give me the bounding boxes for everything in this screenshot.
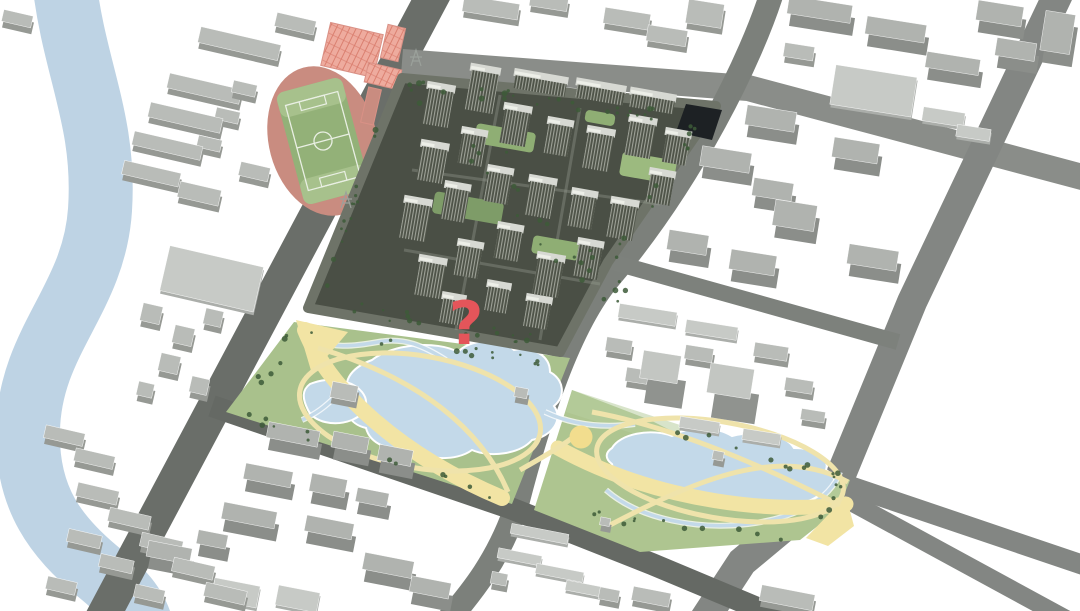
tree	[587, 268, 592, 273]
tree	[380, 342, 384, 346]
tree	[256, 374, 261, 379]
tree	[479, 96, 485, 102]
tree	[410, 89, 413, 92]
context-building	[489, 571, 510, 592]
tree	[633, 517, 636, 520]
tree	[736, 526, 742, 532]
tree	[539, 243, 541, 245]
tree	[477, 151, 482, 156]
tree	[307, 439, 310, 442]
tree	[598, 510, 601, 513]
tree	[835, 470, 841, 476]
tree	[354, 194, 357, 197]
tree	[605, 109, 610, 114]
tree	[768, 457, 773, 462]
tree	[629, 110, 632, 113]
tree	[349, 217, 352, 220]
tree	[331, 257, 336, 262]
tree	[839, 485, 842, 488]
tree	[623, 288, 628, 293]
tree	[282, 336, 288, 342]
tree	[602, 297, 607, 302]
tree	[833, 476, 836, 479]
tree	[486, 172, 489, 175]
tree	[345, 230, 348, 233]
tree	[779, 538, 783, 542]
tree	[263, 417, 268, 422]
tree	[512, 95, 514, 97]
tree	[514, 340, 517, 343]
tree	[259, 380, 265, 386]
tree	[537, 363, 540, 366]
tree	[268, 371, 273, 376]
tree	[700, 526, 705, 531]
tree	[688, 124, 692, 128]
tree	[662, 519, 665, 522]
tree	[592, 512, 596, 516]
tree	[548, 97, 550, 99]
tree	[535, 359, 539, 363]
tree	[416, 321, 421, 326]
tree	[373, 135, 376, 138]
context-building	[770, 199, 822, 244]
tree	[468, 485, 473, 490]
tree	[353, 310, 357, 314]
tree	[471, 144, 475, 148]
tree	[505, 151, 508, 154]
tree	[636, 114, 639, 117]
tree	[394, 462, 398, 466]
tree	[491, 351, 494, 354]
tree	[416, 80, 422, 86]
tree	[405, 310, 409, 314]
tree	[342, 219, 345, 222]
tree	[805, 462, 811, 468]
tree	[388, 320, 390, 322]
tree	[755, 532, 760, 537]
tree	[707, 433, 712, 438]
tree	[618, 280, 621, 283]
tree	[687, 131, 692, 136]
tree	[615, 255, 618, 258]
question-marker: ?	[449, 289, 484, 359]
tree	[407, 82, 412, 87]
tree	[648, 195, 652, 199]
tree	[536, 103, 539, 106]
tree	[407, 318, 412, 323]
tree	[421, 81, 425, 85]
tree	[818, 514, 823, 519]
tree	[735, 446, 738, 449]
tree	[502, 90, 508, 96]
tree	[382, 309, 384, 311]
tree	[683, 143, 686, 146]
context-building	[665, 229, 714, 268]
tree	[554, 259, 558, 263]
tree	[835, 483, 838, 486]
tree	[247, 412, 252, 417]
tree	[784, 465, 788, 469]
tree	[310, 331, 313, 334]
tree	[573, 256, 576, 259]
tree	[259, 422, 265, 428]
tree	[621, 521, 626, 526]
tree	[545, 222, 550, 227]
tree	[612, 287, 618, 293]
tree	[686, 146, 690, 150]
tree	[373, 127, 379, 133]
tree	[273, 425, 276, 428]
tree	[619, 243, 622, 246]
tree	[354, 185, 358, 189]
tree	[651, 205, 654, 208]
tree	[278, 361, 282, 365]
tree	[360, 302, 363, 305]
plaza-circle	[570, 426, 593, 449]
tree	[389, 338, 393, 342]
tree	[616, 300, 619, 303]
tree	[675, 430, 680, 435]
tree	[616, 106, 619, 109]
tree	[650, 118, 653, 121]
tree	[491, 356, 494, 359]
tree	[405, 314, 410, 319]
tree	[353, 203, 356, 206]
tree	[469, 159, 474, 164]
tree	[519, 354, 521, 356]
tree	[627, 114, 630, 117]
tree	[576, 107, 581, 112]
tree	[831, 496, 835, 500]
tree	[589, 249, 592, 252]
tree	[417, 100, 423, 106]
tree	[826, 507, 832, 513]
tree	[682, 526, 687, 531]
tree	[557, 97, 561, 101]
tree	[516, 214, 519, 217]
tree	[537, 218, 542, 223]
tree	[571, 101, 575, 105]
tree	[787, 466, 792, 471]
tree	[616, 111, 619, 114]
tree	[524, 338, 530, 344]
tree	[492, 327, 495, 330]
tree	[831, 472, 834, 475]
tree	[356, 200, 359, 203]
tree	[529, 333, 532, 336]
context-building	[684, 0, 726, 35]
tree	[590, 255, 595, 260]
tree	[511, 184, 516, 189]
tree	[578, 260, 583, 265]
tree	[683, 435, 689, 441]
tree	[306, 430, 310, 434]
tree	[644, 113, 647, 116]
tree	[495, 331, 499, 335]
question-mark: ?	[449, 289, 484, 359]
tree	[325, 283, 330, 288]
tree	[440, 472, 445, 477]
masterplan-svg: ?	[0, 0, 1080, 611]
tree	[579, 277, 585, 283]
tree	[341, 240, 344, 243]
tree	[516, 188, 520, 192]
park-pavilion	[513, 387, 531, 406]
tree	[387, 457, 392, 462]
tree	[647, 106, 653, 112]
tree	[340, 227, 343, 230]
tree	[654, 183, 659, 188]
tree	[693, 127, 697, 131]
masterplan: ?	[0, 0, 1080, 611]
tree	[488, 496, 491, 499]
tree	[480, 87, 484, 91]
tree	[621, 235, 627, 241]
tree	[441, 89, 446, 94]
tree	[502, 96, 507, 101]
tree	[512, 334, 514, 336]
